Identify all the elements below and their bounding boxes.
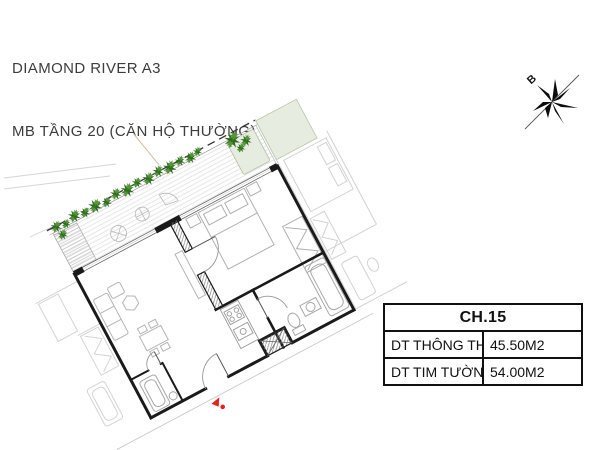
- unit-code: CH.15: [384, 304, 582, 331]
- gross-area-label: DT TIM TƯỜNG: [384, 358, 483, 385]
- area-table: CH.15 DT THÔNG THỦY 45.50M2 DT TIM TƯỜNG…: [383, 303, 583, 386]
- compass-icon: B: [525, 73, 579, 129]
- table-row: DT THÔNG THỦY 45.50M2: [384, 331, 582, 358]
- page: DIAMOND RIVER A3 MB TẦNG 20 (CĂN HỘ THƯỜ…: [0, 0, 600, 450]
- unit-plan: [0, 53, 419, 450]
- gross-area-value: 54.00M2: [483, 358, 582, 385]
- table-header-row: CH.15: [384, 304, 582, 331]
- entry-marker-icon: [210, 397, 225, 413]
- leader-line: [134, 130, 160, 169]
- compass-blades: [533, 79, 578, 124]
- net-area-label: DT THÔNG THỦY: [384, 331, 483, 358]
- net-area-value: 45.50M2: [483, 331, 582, 358]
- table-row: DT TIM TƯỜNG 54.00M2: [384, 358, 582, 385]
- north-label: B: [525, 73, 539, 87]
